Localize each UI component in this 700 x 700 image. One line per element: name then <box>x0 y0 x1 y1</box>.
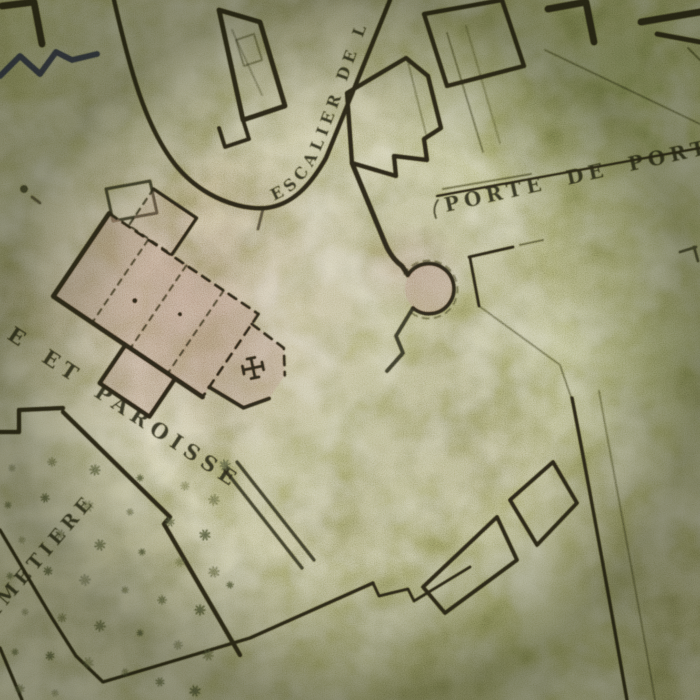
map-canvas: ESCALIER DE L <box>0 0 700 700</box>
photo-vignette <box>0 0 700 700</box>
historical-map-photo: ESCALIER DE L <box>0 0 700 700</box>
